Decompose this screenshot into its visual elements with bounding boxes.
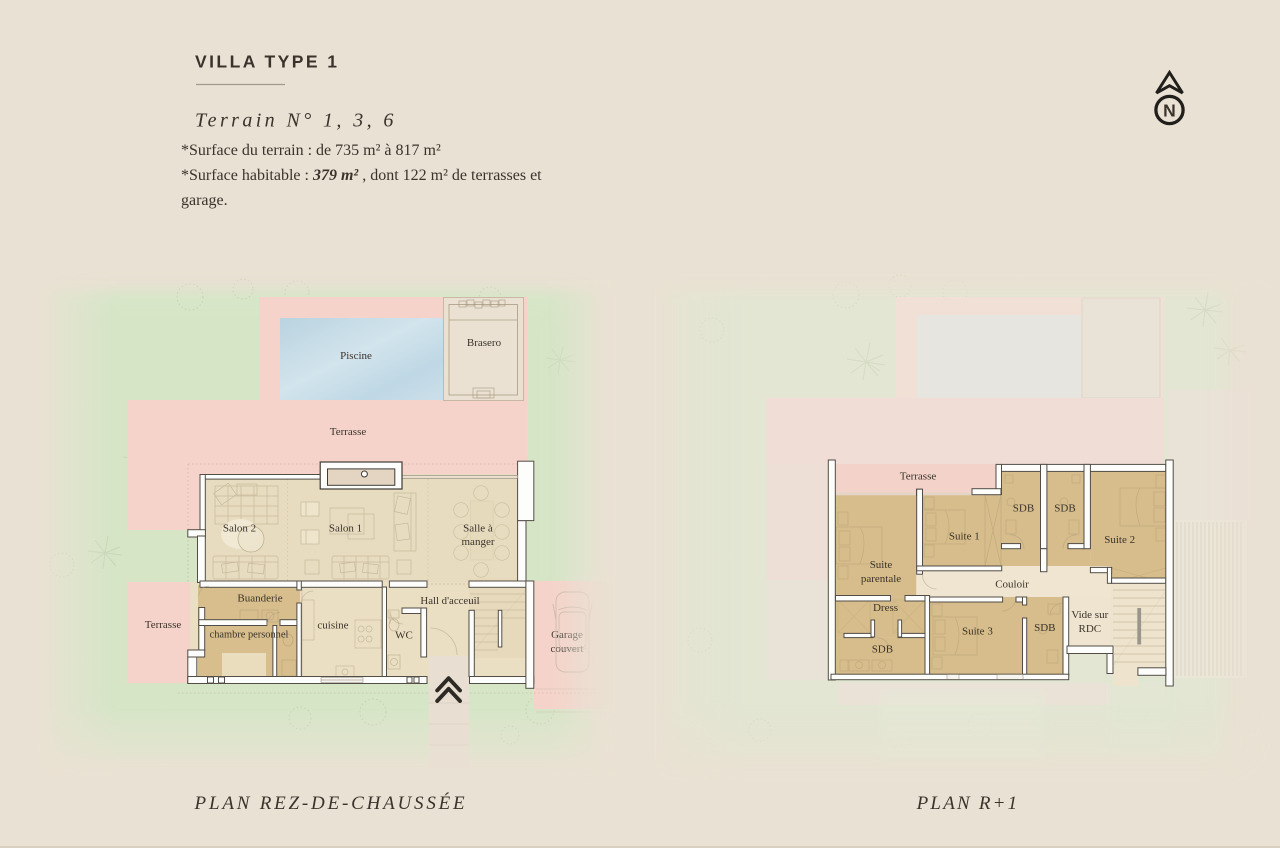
svg-text:Terrasse: Terrasse: [330, 426, 367, 438]
svg-text:Salle à: Salle à: [463, 523, 493, 535]
svg-text:SDB: SDB: [872, 644, 893, 656]
svg-text:Dress: Dress: [873, 602, 898, 614]
svg-text:chambre personnel: chambre personnel: [210, 630, 289, 641]
svg-text:SDB: SDB: [1034, 622, 1055, 634]
svg-text:cuisine: cuisine: [317, 620, 348, 632]
svg-text:Suite 3: Suite 3: [962, 626, 993, 638]
svg-text:N: N: [1163, 101, 1176, 121]
svg-text:Salon 2: Salon 2: [223, 523, 256, 535]
svg-text:VILLA TYPE 1: VILLA TYPE 1: [195, 52, 339, 72]
svg-text:Vide sur: Vide sur: [1071, 609, 1108, 621]
svg-text:Couloir: Couloir: [995, 579, 1029, 591]
svg-text:PLAN R+1: PLAN R+1: [916, 793, 1020, 814]
svg-text:Terrasse: Terrasse: [900, 471, 937, 483]
svg-text:SDB: SDB: [1054, 503, 1075, 515]
svg-text:Suite 2: Suite 2: [1104, 534, 1135, 546]
svg-text:garage.: garage.: [181, 192, 228, 209]
svg-text:*Surface habitable : 379 m² ,: *Surface habitable : 379 m² , dont 122 m…: [181, 167, 542, 184]
svg-text:Terrain N° 1, 3, 6: Terrain N° 1, 3, 6: [195, 110, 397, 132]
svg-text:Terrasse: Terrasse: [145, 619, 182, 631]
svg-text:Piscine: Piscine: [340, 350, 372, 362]
svg-text:PLAN REZ-DE-CHAUSSÉE: PLAN REZ-DE-CHAUSSÉE: [194, 792, 468, 814]
svg-text:Salon 1: Salon 1: [329, 523, 362, 535]
svg-text:Suite 1: Suite 1: [949, 531, 980, 543]
svg-text:Suite: Suite: [870, 559, 893, 571]
svg-text:WC: WC: [395, 630, 413, 642]
svg-text:Hall d'acceuil: Hall d'acceuil: [420, 595, 479, 607]
svg-text:RDC: RDC: [1078, 623, 1101, 635]
svg-text:SDB: SDB: [1013, 503, 1034, 515]
svg-text:manger: manger: [462, 536, 495, 548]
svg-text:Buanderie: Buanderie: [237, 593, 282, 605]
svg-text:parentale: parentale: [861, 573, 901, 585]
svg-text:*Surface du terrain : de 735 m: *Surface du terrain : de 735 m² à 817 m²: [181, 142, 441, 159]
svg-text:Brasero: Brasero: [467, 337, 502, 349]
